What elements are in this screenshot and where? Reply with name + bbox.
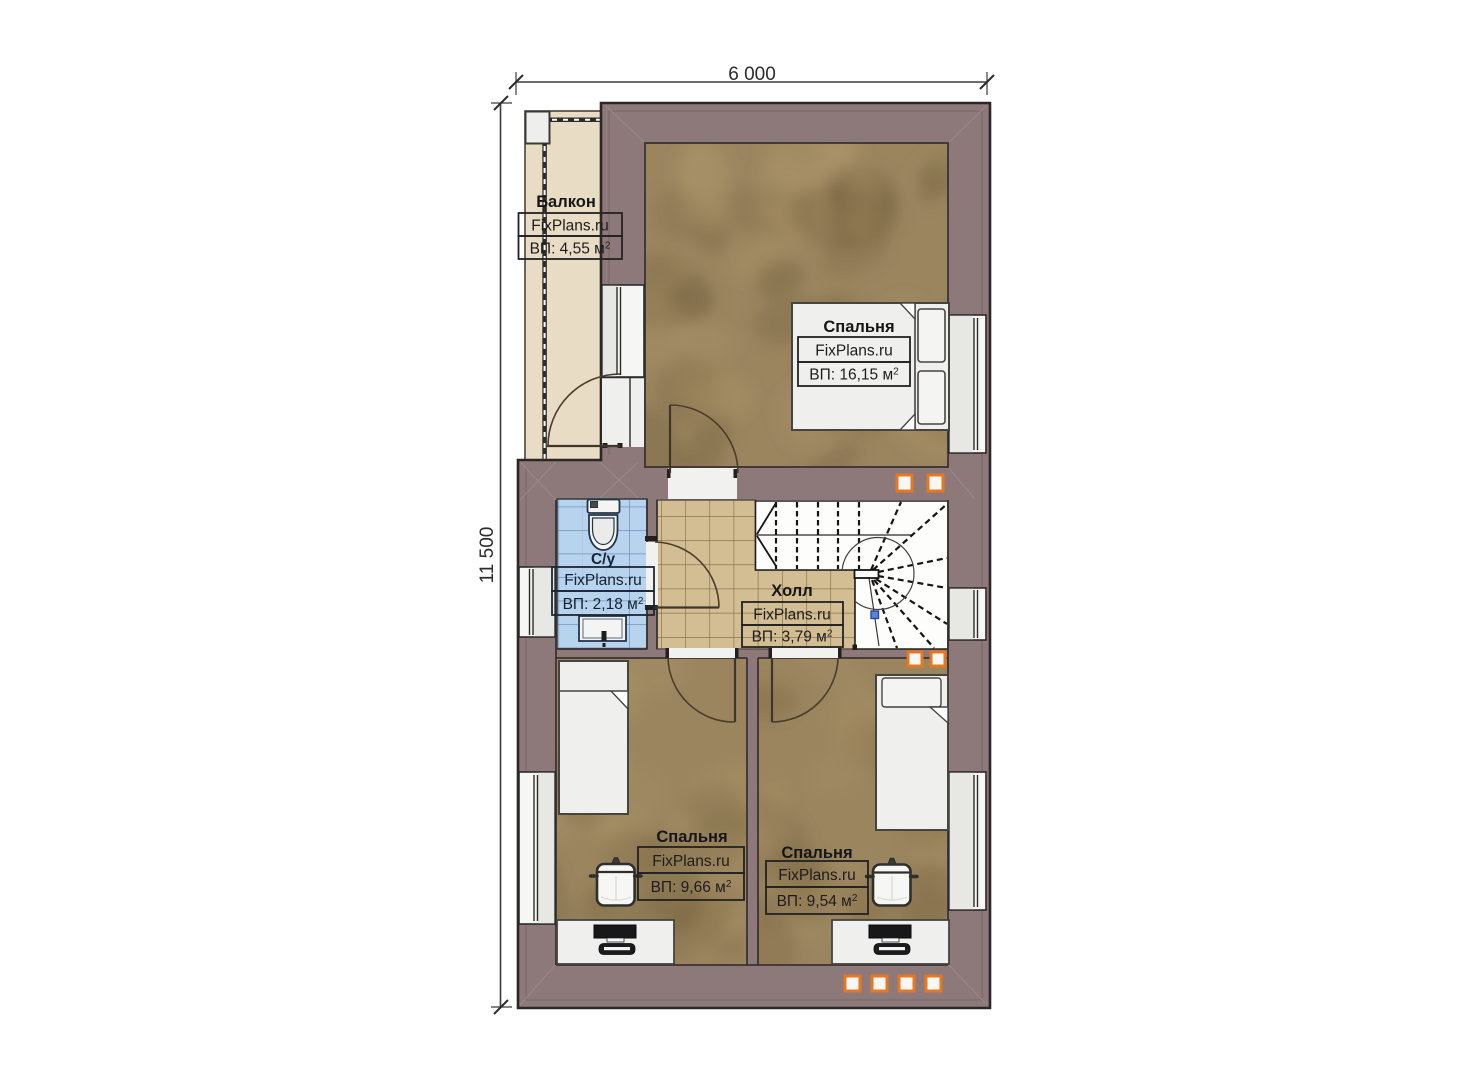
svg-text:FixPlans.ru: FixPlans.ru bbox=[652, 853, 730, 870]
svg-text:6 000: 6 000 bbox=[728, 64, 776, 85]
svg-text:Балкон: Балкон bbox=[536, 193, 596, 211]
svg-text:Холл: Холл bbox=[771, 582, 812, 600]
svg-text:11 500: 11 500 bbox=[477, 527, 498, 584]
svg-text:ВП: 4,55 м2: ВП: 4,55 м2 bbox=[530, 241, 611, 258]
svg-text:FixPlans.ru: FixPlans.ru bbox=[753, 607, 831, 624]
svg-text:Спальня: Спальня bbox=[656, 828, 727, 846]
svg-text:ВП: 9,54 м2: ВП: 9,54 м2 bbox=[777, 893, 858, 910]
svg-text:Спальня: Спальня bbox=[781, 844, 852, 862]
svg-text:FixPlans.ru: FixPlans.ru bbox=[778, 867, 856, 884]
svg-text:Спальня: Спальня bbox=[823, 318, 894, 336]
svg-text:FixPlans.ru: FixPlans.ru bbox=[564, 572, 642, 589]
svg-text:ВП: 16,15 м2: ВП: 16,15 м2 bbox=[809, 367, 899, 384]
svg-text:ВП: 2,18 м2: ВП: 2,18 м2 bbox=[563, 596, 644, 613]
svg-text:FixPlans.ru: FixPlans.ru bbox=[531, 218, 609, 235]
svg-text:ВП: 3,79 м2: ВП: 3,79 м2 bbox=[752, 629, 833, 646]
svg-text:С/у: С/у bbox=[591, 551, 616, 568]
svg-text:FixPlans.ru: FixPlans.ru bbox=[815, 343, 893, 360]
svg-text:ВП: 9,66 м2: ВП: 9,66 м2 bbox=[651, 879, 732, 896]
